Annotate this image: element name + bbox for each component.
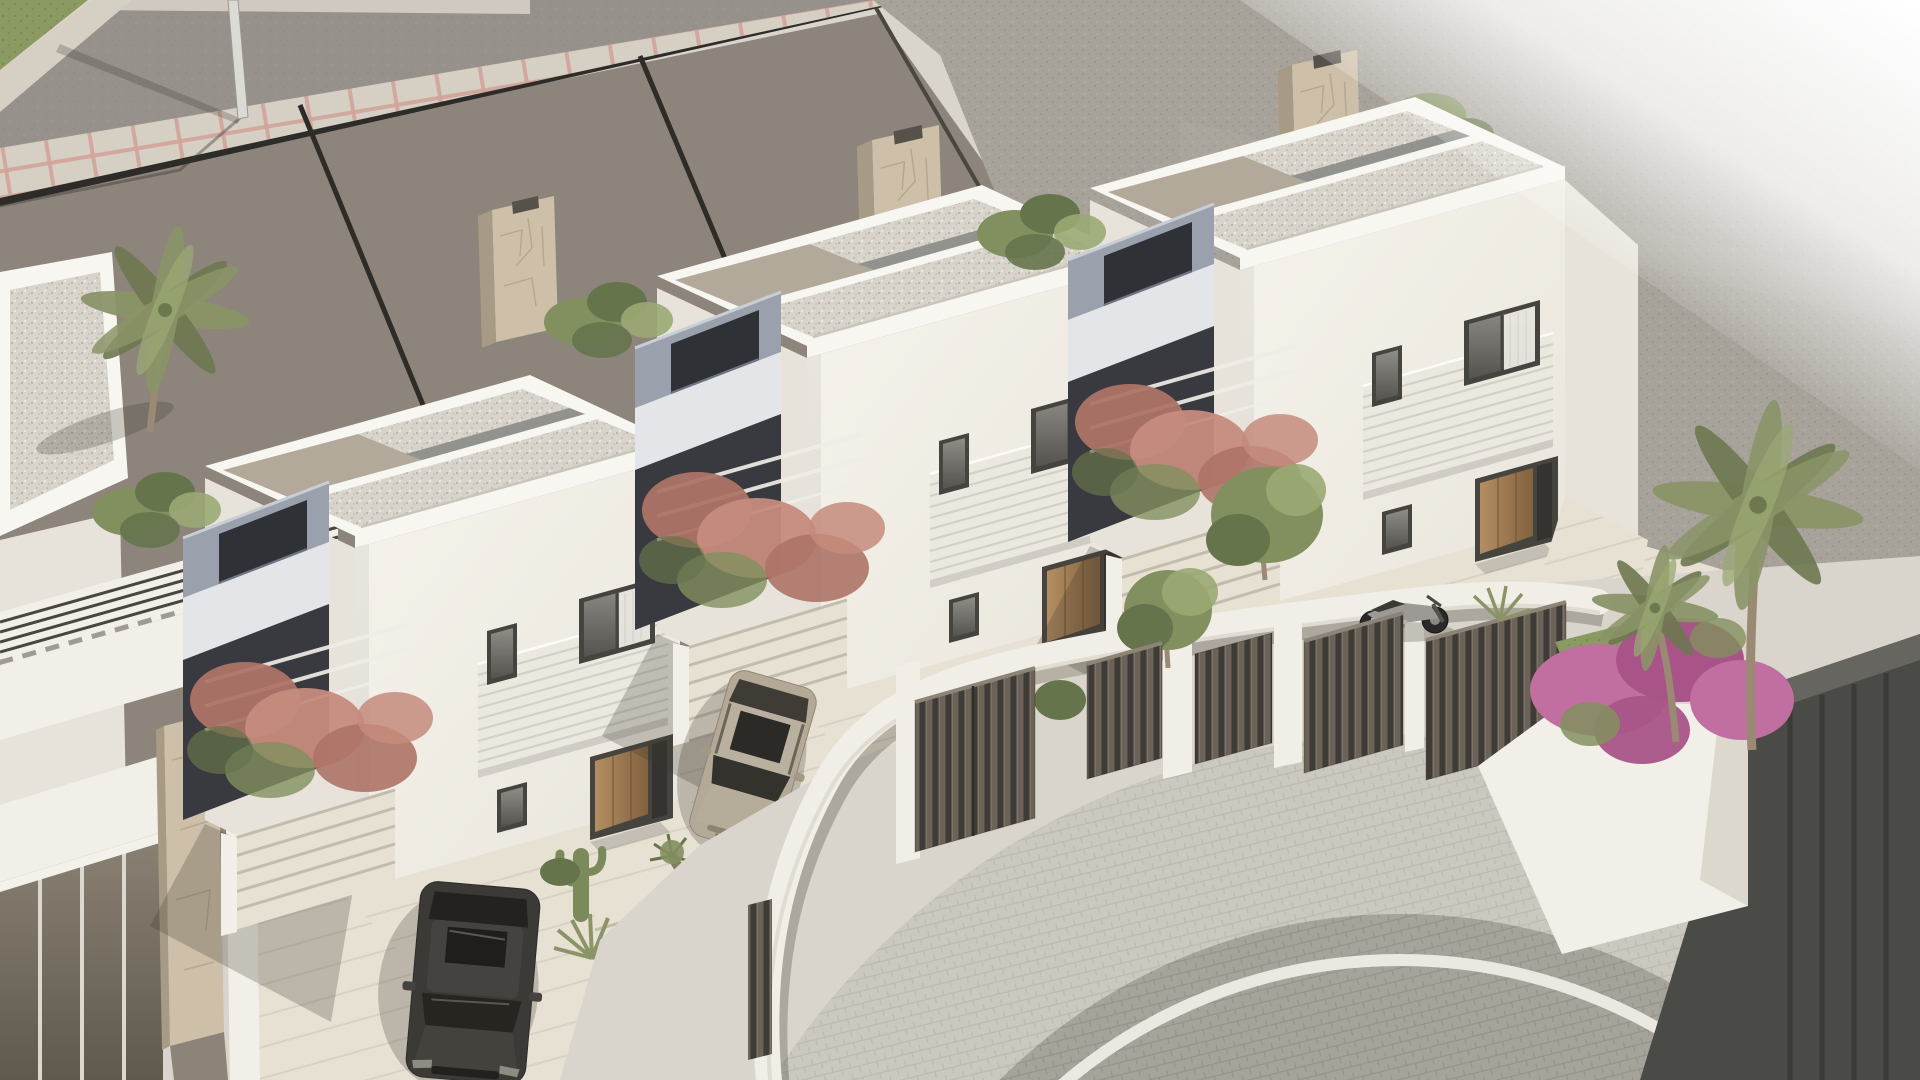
architectural-rendering [0, 0, 1920, 1080]
tree-2b [1206, 514, 1270, 566]
suv-sunroof [445, 927, 508, 968]
tree-2c [1266, 464, 1326, 516]
gate-3 [1195, 633, 1272, 764]
gate-small-left [748, 899, 772, 1060]
tree-1b [1117, 604, 1173, 652]
gate-middle [1087, 643, 1162, 779]
small-bush [540, 858, 580, 886]
render-canvas [0, 0, 1920, 1080]
tree-1c [1162, 568, 1218, 616]
wall-pier-3 [1274, 612, 1302, 768]
gate-bush [1034, 680, 1086, 720]
suv-mirror-left [402, 981, 416, 991]
suv-mirror-right [529, 992, 543, 1002]
